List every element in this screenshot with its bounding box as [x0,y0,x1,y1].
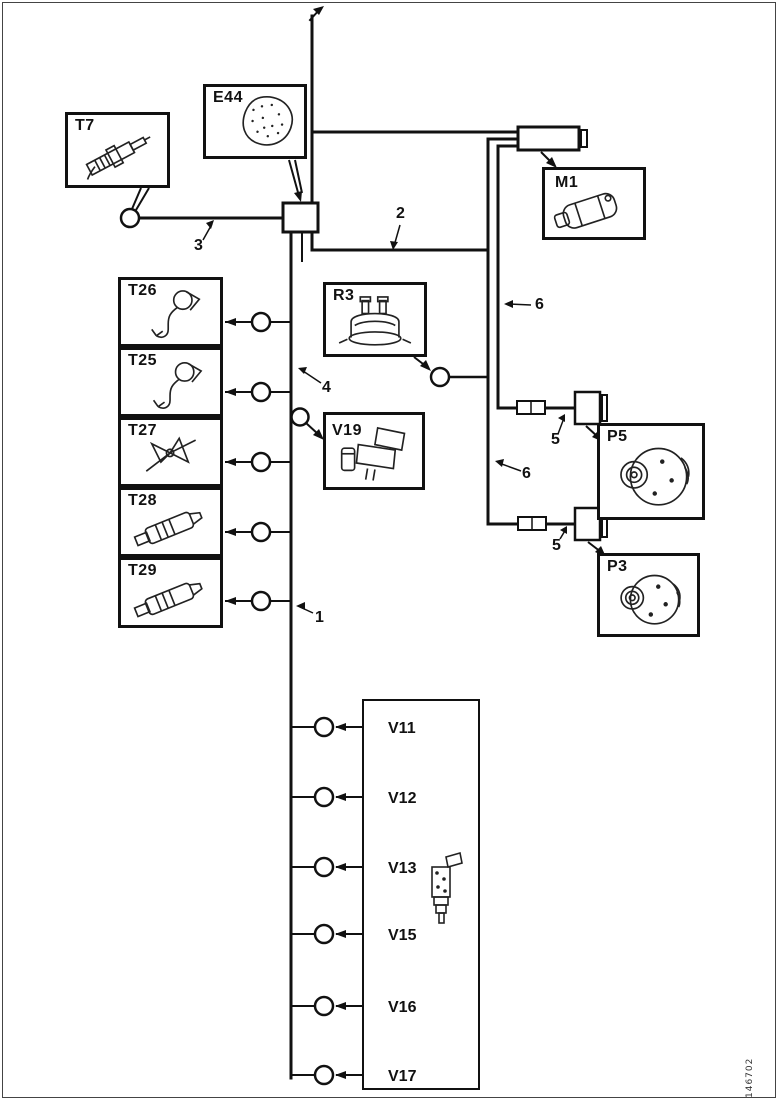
figure-number: 146702 [745,1026,763,1098]
t25-connector [252,383,270,401]
injector-group-box: V11 V12 V13 V15 V16 V17 [362,699,480,1090]
t26-connector [252,313,270,331]
v13-label: V13 [388,861,416,877]
v12-label: V12 [388,791,416,807]
m1-connector-block [518,127,587,150]
v19-connector [292,409,309,426]
t27-box: T27 [118,417,223,487]
injector-illustration [422,851,467,931]
wire-6-right-leg [498,146,518,408]
v19-box: V19 [323,412,425,490]
wire-number-6-upper: 6 [535,297,544,313]
t26-box-label: T26 [128,283,157,299]
t25-box-label: T25 [128,353,157,369]
injector-branches [291,727,362,1075]
wire-6-left-leg [488,139,518,524]
arrowhead [294,191,302,202]
t28-box-label: T28 [128,493,157,509]
t27-box-label: T27 [128,423,157,439]
v11-connector [315,718,333,736]
wire-number-1: 1 [315,610,324,626]
wire-number-4: 4 [322,380,331,396]
r3-connector [431,368,449,386]
e44-box: E44 [203,84,307,159]
wire-number-6-lower: 6 [522,466,531,482]
v15-connector [315,925,333,943]
wire-number-5-lower: 5 [552,538,561,554]
v16-connector [315,997,333,1015]
p5-box: P5 [597,423,705,520]
r3-box: R3 [323,282,427,357]
v11-label: V11 [388,721,416,737]
wiring-diagram-page: T7 E44 M1 [0,0,778,1100]
t26-box: T26 [118,277,223,347]
t7-box-label: T7 [75,118,95,134]
r3-box-label: R3 [333,288,354,304]
m1-box-label: M1 [555,175,578,191]
v16-label: V16 [388,1000,416,1016]
t29-connector [252,592,270,610]
t7-box: T7 [65,112,170,188]
v13-connector [315,858,333,876]
t28-box: T28 [118,487,223,557]
e44-box-label: E44 [213,90,243,106]
m1-box: M1 [542,167,646,240]
t27-connector [252,453,270,471]
t29-box: T29 [118,557,223,628]
v15-label: V15 [388,928,416,944]
wire-number-5-upper: 5 [551,432,560,448]
v12-connector [315,788,333,806]
p3-box: P3 [597,553,700,637]
wire-2-right-harness [312,232,488,250]
t28-connector [252,523,270,541]
t25-box: T25 [118,347,223,417]
v17-connector [315,1066,333,1084]
wire-number-3: 3 [194,238,203,254]
t29-box-label: T29 [128,563,157,579]
t7-ring-connector [121,209,139,227]
harness-junction-connector [283,203,318,232]
p5-box-label: P5 [607,429,628,445]
v19-box-label: V19 [332,423,362,439]
wire-number-2: 2 [396,206,405,222]
p3-box-label: P3 [607,559,628,575]
v17-label: V17 [388,1069,416,1085]
